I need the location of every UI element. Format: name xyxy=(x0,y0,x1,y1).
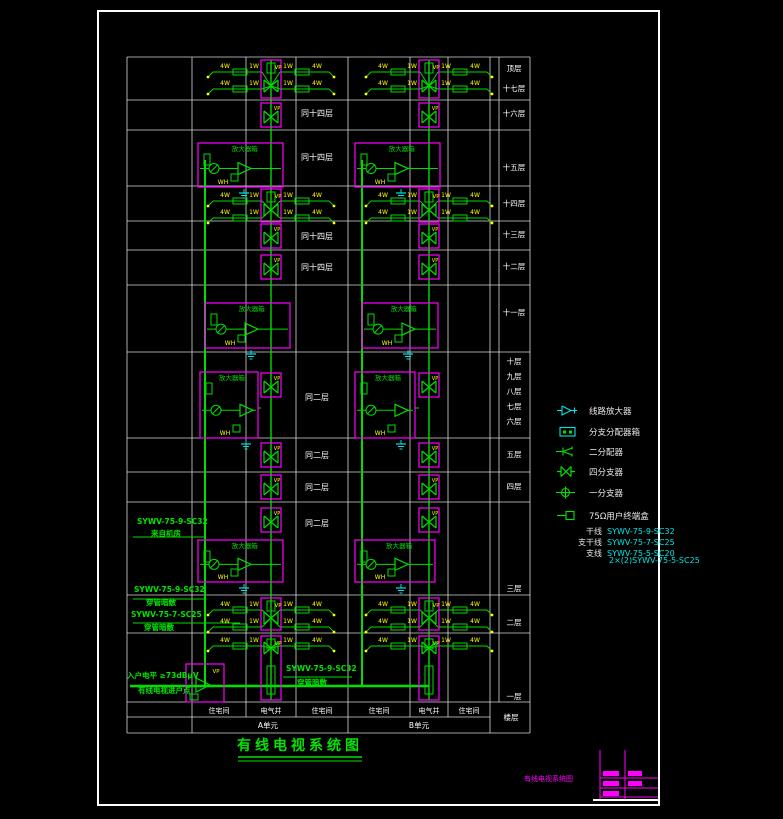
tap-label: 4W xyxy=(220,63,230,70)
tap-label: 1W xyxy=(407,63,417,70)
tap-label: 4W xyxy=(378,601,388,608)
terminal-dot xyxy=(491,650,494,653)
terminal-drop xyxy=(329,646,333,650)
vp-label: VP xyxy=(432,446,438,452)
tap-label: 1W xyxy=(441,209,451,216)
floor-label: 四层 xyxy=(507,482,522,491)
vp-label: VP xyxy=(432,194,440,200)
title-block xyxy=(593,750,658,800)
wire xyxy=(210,165,218,173)
floor-label: 一层 xyxy=(507,692,522,701)
outlet-rect xyxy=(388,569,395,576)
tap-label: 1W xyxy=(441,63,451,70)
psu-rect xyxy=(368,314,374,325)
room-label: 住宅间 xyxy=(312,706,333,715)
tap-label: 1W xyxy=(283,637,293,644)
tap-label: 4W xyxy=(220,209,230,216)
entry-level-label: 入户电平 ≥73dBμV xyxy=(127,672,199,680)
cable-spec: SYWV-75-9-SC32 xyxy=(607,527,675,536)
room-label: 电气井 xyxy=(261,706,282,715)
floor-label: 十二层 xyxy=(503,261,526,271)
floor-label: 十三层 xyxy=(503,229,526,239)
terminal-dot xyxy=(207,650,210,653)
terminal-dot xyxy=(365,76,368,79)
tap-label: 4W xyxy=(312,637,322,644)
feeder-sub-2: 穿管暗敷 xyxy=(146,599,176,607)
amp-box-label: 放大器箱 xyxy=(239,304,266,313)
tap-label: 4W xyxy=(220,192,230,199)
terminal-dot xyxy=(365,222,368,225)
amp-triangle-icon xyxy=(395,163,408,175)
terminal-dot xyxy=(365,650,368,653)
tap-label: 4W xyxy=(220,601,230,608)
tap-label: 4W xyxy=(312,601,322,608)
tap-label: 1W xyxy=(407,192,417,199)
terminal-dot xyxy=(207,76,210,79)
same-floor-note: 同十四层 xyxy=(301,152,333,162)
tap-label: 4W xyxy=(378,80,388,87)
wh-label: WH xyxy=(375,179,385,186)
wh-label: WH xyxy=(375,430,385,437)
terminal-dot xyxy=(365,614,368,617)
outlet-rect xyxy=(238,335,245,342)
unit-b-label: B单元 xyxy=(409,720,430,730)
vp-label: VP xyxy=(432,106,438,112)
tap-label: 1W xyxy=(283,192,293,199)
tap-label: 1W xyxy=(283,63,293,70)
floor-label: 八层 xyxy=(507,387,522,396)
terminal-drop xyxy=(329,610,333,614)
amp-triangle-icon xyxy=(238,163,251,175)
vp-label: VP xyxy=(274,194,282,200)
terminal-dot xyxy=(333,76,336,79)
legend-label: 一分支器 xyxy=(589,487,623,499)
vp-label: VP xyxy=(432,376,438,382)
floor-label: 十四层 xyxy=(503,198,526,208)
legend-label: 75Ω用户终端盒 xyxy=(589,510,649,522)
tap-label: 4W xyxy=(470,80,480,87)
cable-name: 干线 xyxy=(560,526,602,537)
outlet-rect xyxy=(190,694,198,700)
legend-label: 四分支器 xyxy=(589,466,623,478)
feeder-spec-2: SYWV-75-9-SC32 xyxy=(134,586,205,594)
terminal-drop xyxy=(367,72,371,76)
terminal-dot xyxy=(207,93,210,96)
terminal-dot xyxy=(333,631,336,634)
legend-label: 二分配器 xyxy=(589,446,623,458)
tap-label: 1W xyxy=(249,80,259,87)
tap-label: 4W xyxy=(220,637,230,644)
tap-label: 1W xyxy=(407,601,417,608)
feeder-sub-1: 来自机房 xyxy=(151,530,181,538)
same-floor-note: 同二层 xyxy=(305,519,329,528)
same-floor-note: 同二层 xyxy=(305,483,329,492)
tap-label: 4W xyxy=(312,209,322,216)
tap-label: 4W xyxy=(378,637,388,644)
tap-label: 4W xyxy=(470,209,480,216)
terminal-dot xyxy=(365,93,368,96)
feeder-spec-3: SYWV-75-7-SC25 xyxy=(131,611,202,619)
tap-label: 1W xyxy=(441,80,451,87)
terminal-dot xyxy=(491,93,494,96)
floor-label: 七层 xyxy=(507,402,522,411)
riser-spec-sub: 穿管暗敷 xyxy=(297,679,327,687)
entry-point-label: 有线电视进户点 xyxy=(138,687,191,695)
terminal-drop xyxy=(367,646,371,650)
four-way-tap-icon xyxy=(556,465,582,478)
tap-label: 1W xyxy=(407,637,417,644)
wire xyxy=(374,325,382,333)
tap-label: 1W xyxy=(407,80,417,87)
same-floor-note: 同二层 xyxy=(305,393,329,402)
same-floor-note: 同二层 xyxy=(305,451,329,460)
tap-label: 1W xyxy=(249,192,259,199)
tap-label: 1W xyxy=(283,209,293,216)
floor-label: 十层 xyxy=(507,356,522,366)
tap-label: 1W xyxy=(249,618,259,625)
room-label: 住宅间 xyxy=(369,706,390,715)
wire xyxy=(217,325,225,333)
terminal-dot xyxy=(491,631,494,634)
wh-label: WH xyxy=(220,430,230,437)
wh-label: WH xyxy=(382,340,392,347)
legend-item-outlet: 75Ω用户终端盒 xyxy=(556,505,649,520)
tap-label: 4W xyxy=(470,601,480,608)
tap-label: 1W xyxy=(441,637,451,644)
terminal-dot xyxy=(491,205,494,208)
drawing-title: 有线电视系统图 xyxy=(230,739,370,754)
cad-drawing: 4W1W4W1W4W1W4W1W4W1W4W1W4W1W4W1W4W1W4W1W… xyxy=(0,0,783,819)
vp-label: VP xyxy=(212,669,220,675)
vp-label: VP xyxy=(274,258,280,264)
tap-label: 1W xyxy=(407,618,417,625)
vp-label: VP xyxy=(274,603,282,609)
tap-label: 1W xyxy=(441,618,451,625)
tap-label: 4W xyxy=(378,192,388,199)
vp-label: VP xyxy=(432,478,438,484)
cable-name: 支干线 xyxy=(560,537,602,548)
vp-label: VP xyxy=(432,65,440,71)
room-label: 住宅间 xyxy=(209,706,230,715)
terminal-drop xyxy=(209,646,213,650)
terminal-dot xyxy=(491,76,494,79)
floor-label: 三层 xyxy=(507,584,522,593)
outlet-rect xyxy=(231,174,238,181)
amp-triangle-icon xyxy=(395,558,408,570)
terminal-drop xyxy=(329,72,333,76)
vp-label: VP xyxy=(274,376,280,382)
outlet-rect xyxy=(395,335,402,342)
amp-triangle-icon xyxy=(238,558,251,570)
floor-label: 十五层 xyxy=(503,162,526,172)
vp-label: VP xyxy=(274,478,280,484)
wire xyxy=(367,165,375,173)
vp-label: VP xyxy=(274,106,280,112)
terminal-drop xyxy=(329,627,333,631)
terminal-dot xyxy=(333,614,336,617)
amp-box-label: 放大器箱 xyxy=(386,541,413,550)
outlet-rect xyxy=(231,569,238,576)
tap-label: 4W xyxy=(312,80,322,87)
outlet-rect xyxy=(388,425,395,432)
amp-triangle-icon xyxy=(395,404,408,416)
tap-label: 4W xyxy=(220,618,230,625)
tap-label: 1W xyxy=(441,601,451,608)
room-label: 电气井 xyxy=(419,706,440,715)
wh-label: WH xyxy=(375,574,385,581)
vp-label: VP xyxy=(432,227,438,233)
wire xyxy=(212,406,220,414)
schematic-canvas: 4W1W4W1W4W1W4W1W4W1W4W1W4W1W4W1W4W1W4W1W… xyxy=(0,0,783,819)
outlet-icon xyxy=(556,509,582,522)
cable-spec-subtrunk: 支干线SYWV-75-7-SC25 xyxy=(560,537,675,548)
amp-triangle-icon xyxy=(402,323,415,335)
terminal-dot xyxy=(207,205,210,208)
tap-label: 1W xyxy=(249,63,259,70)
terminal-dot xyxy=(333,93,336,96)
legend-label: 分支分配器箱 xyxy=(589,426,640,438)
two-way-splitter-icon xyxy=(556,445,582,458)
amp-box-label: 放大器箱 xyxy=(219,373,246,382)
vp-label: VP xyxy=(432,258,438,264)
terminal-dot xyxy=(207,222,210,225)
titleblock-caption: 有线电视系统图 xyxy=(524,776,573,784)
terminal-dot xyxy=(491,222,494,225)
cable-name: 支线 xyxy=(560,548,602,559)
feeder-spec-1: SYWV-75-9-SC32 xyxy=(137,518,208,526)
vp-label: VP xyxy=(274,446,280,452)
feeder-sub-3: 穿管暗敷 xyxy=(144,624,174,632)
legend-item-amplifier: 线路放大器 xyxy=(556,400,632,415)
terminal-dot xyxy=(365,631,368,634)
tap-label: 1W xyxy=(283,601,293,608)
terminal-dot xyxy=(333,222,336,225)
vp-label: VP xyxy=(274,65,282,71)
floor-label: 顶层 xyxy=(507,64,522,73)
terminal-drop xyxy=(367,89,371,93)
terminal-drop xyxy=(209,89,213,93)
same-floor-note: 同十四层 xyxy=(301,262,333,272)
wh-label: WH xyxy=(218,574,228,581)
wire xyxy=(271,72,280,86)
same-floor-note: 同十四层 xyxy=(301,231,333,241)
tap-label: 1W xyxy=(249,601,259,608)
junction-box-icon xyxy=(556,425,582,438)
tap-label: 4W xyxy=(312,192,322,199)
tap-label: 4W xyxy=(312,63,322,70)
vp-label: VP xyxy=(432,511,438,517)
tap-label: 4W xyxy=(470,192,480,199)
floor-label: 十一层 xyxy=(503,307,526,317)
terminal-drop xyxy=(367,201,371,205)
terminal-drop xyxy=(209,72,213,76)
cable-spec-branch-2: 2×(2)SYWV-75-5-SC25 xyxy=(609,557,700,566)
cable-spec-trunk: 干线SYWV-75-9-SC32 xyxy=(560,526,675,537)
wire xyxy=(367,406,375,414)
legend-item-junction-box: 分支分配器箱 xyxy=(556,421,640,436)
tap-label: 4W xyxy=(470,618,480,625)
tap-label: 4W xyxy=(220,80,230,87)
wire xyxy=(262,72,271,86)
amp-box-label: 放大器箱 xyxy=(391,304,418,313)
amp-triangle-icon xyxy=(240,404,253,416)
floors-header: 楼层 xyxy=(504,712,519,722)
amp-box-label: 放大器箱 xyxy=(375,373,402,382)
one-way-tap-icon xyxy=(556,486,582,499)
vp-label: VP xyxy=(274,511,280,517)
tap-label: 1W xyxy=(283,618,293,625)
legend-item-splitter2: 二分配器 xyxy=(556,441,623,456)
terminal-dot xyxy=(333,650,336,653)
terminal-drop xyxy=(209,610,213,614)
wire xyxy=(420,72,429,86)
wh-label: WH xyxy=(225,340,235,347)
same-floor-note: 同十四层 xyxy=(301,108,333,118)
cable-spec: SYWV-75-7-SC25 xyxy=(607,538,675,547)
terminal-drop xyxy=(367,610,371,614)
floor-label: 六层 xyxy=(507,416,522,426)
floor-label: 九层 xyxy=(507,372,522,381)
tap-label: 4W xyxy=(470,637,480,644)
floor-label: 五层 xyxy=(507,450,522,459)
floor-label: 十七层 xyxy=(503,83,526,93)
floor-label: 二层 xyxy=(507,618,522,627)
unit-a-label: A单元 xyxy=(258,720,279,730)
terminal-dot xyxy=(207,631,210,634)
room-label: 住宅间 xyxy=(459,706,480,715)
floor-label: 十六层 xyxy=(503,108,526,118)
tap-label: 1W xyxy=(283,80,293,87)
tap-label: 1W xyxy=(441,192,451,199)
terminal-dot xyxy=(207,614,210,617)
legend-label: 线路放大器 xyxy=(589,405,632,417)
tap-label: 4W xyxy=(312,618,322,625)
terminal-drop xyxy=(209,201,213,205)
terminal-drop xyxy=(329,201,333,205)
terminal-drop xyxy=(329,89,333,93)
line-amplifier-icon xyxy=(556,404,582,417)
wh-label: WH xyxy=(218,179,228,186)
psu-rect xyxy=(211,314,217,325)
terminal-drop xyxy=(209,627,213,631)
amp-box-label: 放大器箱 xyxy=(232,541,259,550)
tap-label: 1W xyxy=(249,637,259,644)
outlet-rect xyxy=(233,425,240,432)
tap-label: 4W xyxy=(470,63,480,70)
outlet-rect xyxy=(388,174,395,181)
vp-label: VP xyxy=(432,603,440,609)
psu-rect xyxy=(206,383,212,394)
tap-label: 4W xyxy=(378,209,388,216)
terminal-drop xyxy=(367,627,371,631)
wire xyxy=(210,560,218,568)
wire xyxy=(429,72,438,86)
amp-triangle-icon xyxy=(245,323,258,335)
wire xyxy=(367,560,375,568)
vp-label: VP xyxy=(274,227,280,233)
legend-item-tap1: 一分支器 xyxy=(556,482,623,497)
riser-spec-label: SYWV-75-9-SC32 xyxy=(286,665,357,673)
amp-box-label: 放大器箱 xyxy=(389,144,416,153)
amp-box-label: 放大器箱 xyxy=(232,144,259,153)
legend-item-tap4: 四分支器 xyxy=(556,461,623,476)
tap-label: 4W xyxy=(378,618,388,625)
terminal-dot xyxy=(491,614,494,617)
terminal-dot xyxy=(365,205,368,208)
tap-label: 1W xyxy=(249,209,259,216)
tap-label: 1W xyxy=(407,209,417,216)
terminal-dot xyxy=(333,205,336,208)
tap-label: 4W xyxy=(378,63,388,70)
